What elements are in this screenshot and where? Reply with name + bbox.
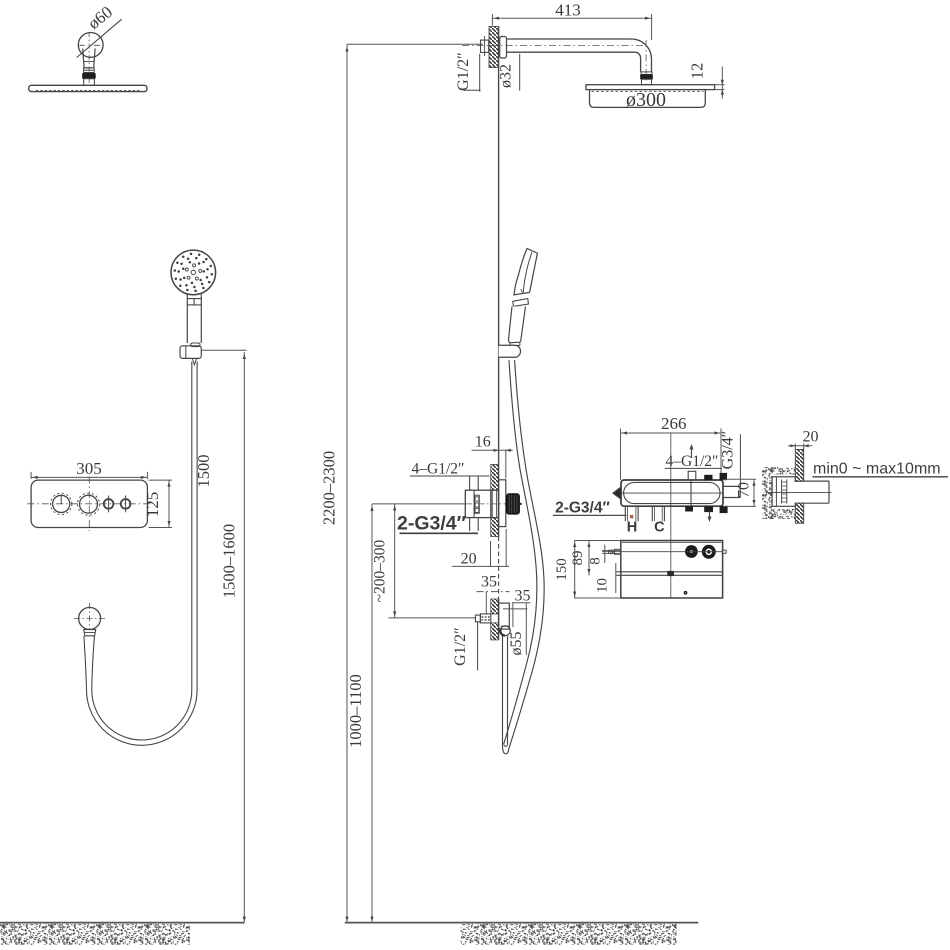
svg-text:70: 70: [736, 482, 753, 498]
svg-text:4–G1/2″: 4–G1/2″: [412, 460, 465, 477]
svg-text:ø300: ø300: [626, 89, 666, 111]
svg-text:20: 20: [803, 429, 819, 446]
svg-text:150: 150: [554, 558, 570, 581]
svg-text:305: 305: [76, 459, 102, 478]
svg-text:C: C: [654, 520, 665, 536]
svg-text:ø55: ø55: [508, 632, 525, 656]
svg-text:413: 413: [555, 1, 581, 20]
svg-text:ø32: ø32: [498, 64, 515, 88]
svg-text:266: 266: [661, 414, 687, 433]
svg-text:G1/2″: G1/2″: [452, 627, 469, 666]
svg-text:H: H: [627, 520, 637, 536]
svg-text:1000–1100: 1000–1100: [346, 674, 365, 748]
svg-text:89: 89: [570, 551, 586, 566]
svg-text:1500–1600: 1500–1600: [220, 524, 239, 598]
svg-text:min0 ~ max10mm: min0 ~ max10mm: [813, 461, 941, 478]
svg-text:35: 35: [481, 574, 497, 591]
svg-text:2-G3/4″: 2-G3/4″: [555, 500, 610, 517]
svg-text:8: 8: [588, 557, 604, 565]
svg-text:G1/2″: G1/2″: [455, 52, 472, 91]
svg-text:G3/4″: G3/4″: [719, 431, 736, 470]
svg-text:125: 125: [143, 492, 162, 518]
svg-text:2-G3/4″: 2-G3/4″: [397, 512, 466, 534]
svg-text:16: 16: [475, 433, 491, 450]
svg-text:35: 35: [515, 587, 531, 604]
svg-text:12: 12: [688, 63, 707, 80]
svg-text:20: 20: [461, 551, 477, 568]
svg-text:~200–300: ~200–300: [372, 539, 389, 602]
svg-text:2200–2300: 2200–2300: [320, 451, 339, 525]
svg-text:10: 10: [595, 578, 611, 593]
svg-text:4–G1/2″: 4–G1/2″: [666, 453, 719, 470]
